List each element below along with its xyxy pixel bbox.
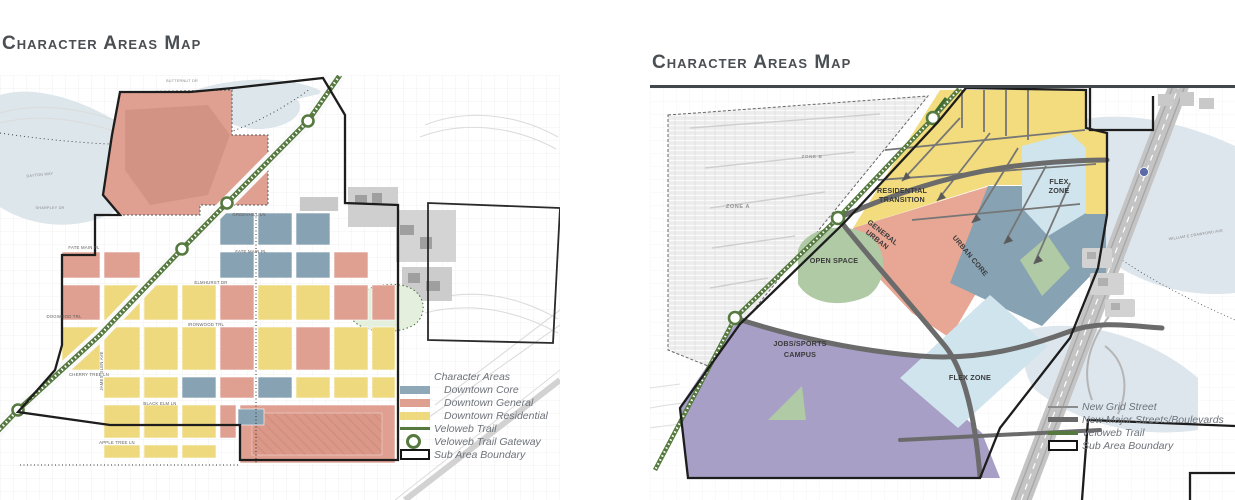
downtown-core-swatch [400,386,430,394]
street-label: IRONWOOD TRL [188,322,225,327]
new-grid-street-label: New Grid Street [1082,401,1157,413]
new-grid-street-swatch [1048,406,1078,408]
legend-row-sub-area-boundary: Sub Area Boundary [1048,439,1224,452]
street-label: DOGWOOD TRL [46,314,81,319]
street-label: GREENHILL LN [232,212,265,217]
downtown-core-label: Downtown Core [434,384,519,396]
legend-row-downtown-residential: Downtown Residential [400,409,548,422]
interstate-shield-icon [1140,168,1149,177]
legend-row-veloweb-trail: Veloweb Trail [1048,426,1224,439]
street-label: BUTTERNUT DR [166,79,198,83]
legend-header-row: Character Areas [400,370,548,383]
veloweb-trail-swatch [400,427,430,430]
residential-transition-label-1: RESIDENTIAL [877,186,928,195]
residential-transition-label-2: TRANSITION [879,195,925,204]
legend-row-downtown-general: Downtown General [400,396,548,409]
character-areas-maps-page: { "left_map": { "title": "Character Area… [0,0,1235,500]
downtown-residential-swatch [400,412,430,420]
jobs-sports-label-2: CAMPUS [784,350,816,359]
sub-area-boundary-swatch [400,449,430,460]
legend-row-new-major-streets: New Major Streets/Boulevards [1048,413,1224,426]
street-label: SHARPLEY DR [36,206,65,210]
sub-area-boundary-label: Sub Area Boundary [1082,440,1173,452]
downtown-general-swatch [400,399,430,407]
new-major-streets-label: New Major Streets/Boulevards [1082,414,1224,426]
street-label: APPLE TREE LN [99,440,135,445]
flex-zone-top-label-2: ZONE [1049,186,1070,195]
right-map-title: Character Areas Map [652,52,851,74]
street-label: FATE MAIN PL [235,249,267,254]
veloweb-trail-label: Veloweb Trail [434,423,496,435]
open-space-label: OPEN SPACE [810,256,859,265]
flex-zone-top-label-1: FLEX [1049,177,1068,186]
zone-a-label: ZONE A [726,204,750,210]
right-map-legend: New Grid Street New Major Streets/Boulev… [1048,400,1224,452]
zone-b-label: ZONE B [802,154,823,159]
street-label: FATE MAIN PL [68,245,100,250]
flex-zone-bottom-label: FLEX ZONE [949,373,991,382]
sub-area-boundary-swatch [1048,440,1078,451]
sub-area-boundary-label: Sub Area Boundary [434,449,525,461]
veloweb-trail-swatch [1048,431,1078,435]
new-major-streets-swatch [1048,417,1078,422]
street-label: JAMES GLEN AVE [99,351,104,390]
legend-row-veloweb-gateway: Veloweb Trail Gateway [400,435,548,448]
right-map-panel: Character Areas Map ZONE A ZONE B [650,0,1235,500]
veloweb-gateway-icon [406,434,421,449]
street-label: ELMHURST DR [194,280,227,285]
veloweb-trail-label: Veloweb Trail [1082,427,1144,439]
legend-row-new-grid-street: New Grid Street [1048,400,1224,413]
legend-row-sub-area-boundary: Sub Area Boundary [400,448,548,461]
legend-row-downtown-core: Downtown Core [400,383,548,396]
left-map-panel: Character Areas Map [0,0,585,500]
left-map-legend: Character Areas Downtown Core Downtown G… [400,370,548,461]
veloweb-gateway-label: Veloweb Trail Gateway [434,436,541,448]
jobs-sports-label-1: JOBS/SPORTS [773,339,826,348]
downtown-general-label: Downtown General [434,397,533,409]
left-map-title: Character Areas Map [2,33,201,55]
street-label: BLACK ELM LN [143,401,176,406]
downtown-residential-label: Downtown Residential [434,410,548,422]
legend-header: Character Areas [434,371,510,383]
